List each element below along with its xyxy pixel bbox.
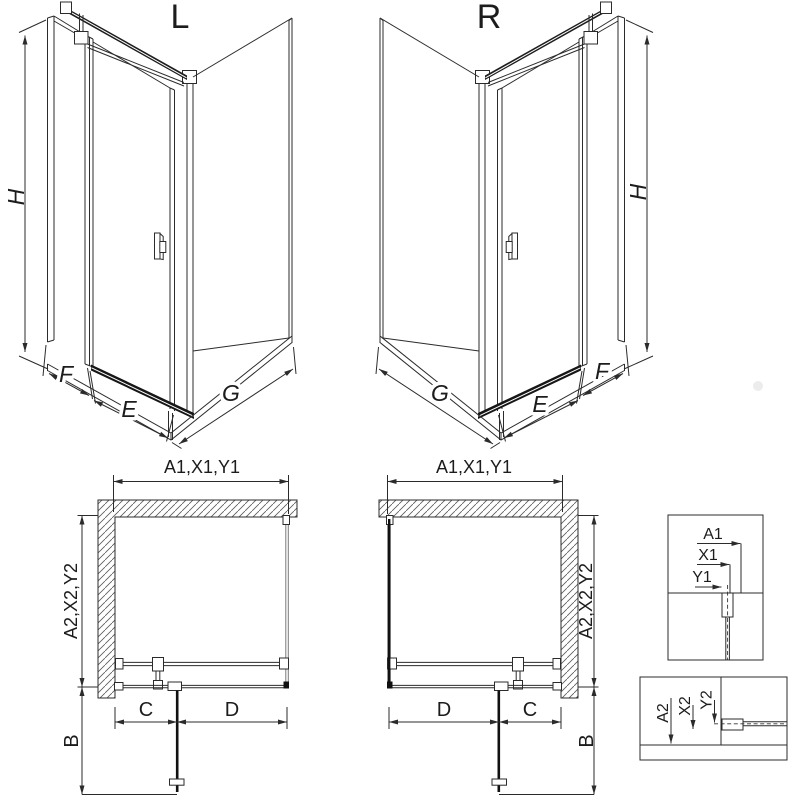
dim-label-d-left: D	[225, 699, 239, 721]
detail-label-x2: X2	[677, 696, 694, 716]
dim-label-a1x1y1-right: A1,X1,Y1	[436, 457, 512, 477]
dim-label-a2x2y2-right: A2,X2,Y2	[576, 563, 596, 639]
detail-label-a2: A2	[655, 703, 672, 723]
variant-label-right: R	[477, 0, 502, 36]
dim-label-d-right: D	[437, 699, 451, 721]
detail-label-y1: Y1	[692, 569, 712, 586]
dim-label-h-right: H	[625, 183, 651, 200]
watermark-dot	[753, 381, 763, 391]
wall-bracket-top	[283, 516, 290, 525]
detail-label-a1: A1	[703, 526, 723, 543]
dim-label-c-right: C	[523, 699, 537, 721]
detail-label-x1: X1	[698, 547, 718, 564]
dim-label-b-left: B	[61, 734, 83, 747]
dim-label-a2x2y2-left: A2,X2,Y2	[61, 563, 81, 639]
dim-label-h-left: H	[3, 188, 29, 205]
dim-label-b-right: B	[576, 734, 598, 747]
variant-label-left: L	[171, 0, 190, 36]
dim-label-g-right: G	[431, 380, 449, 406]
dim-label-e-right: E	[532, 391, 548, 417]
detail-label-y2: Y2	[699, 690, 716, 710]
dim-label-f-left: F	[59, 361, 75, 387]
dim-label-c-left: C	[139, 699, 153, 721]
dim-label-g-left: G	[222, 380, 240, 406]
dim-label-e-left: E	[121, 396, 137, 422]
dim-label-a1x1y1-left: A1,X1,Y1	[164, 457, 240, 477]
shower-enclosure-technical-drawing: L H F E G R H G E F A1,X1,Y1 A2,X2,Y2 C …	[0, 0, 800, 800]
dim-label-f-right: F	[595, 358, 611, 384]
